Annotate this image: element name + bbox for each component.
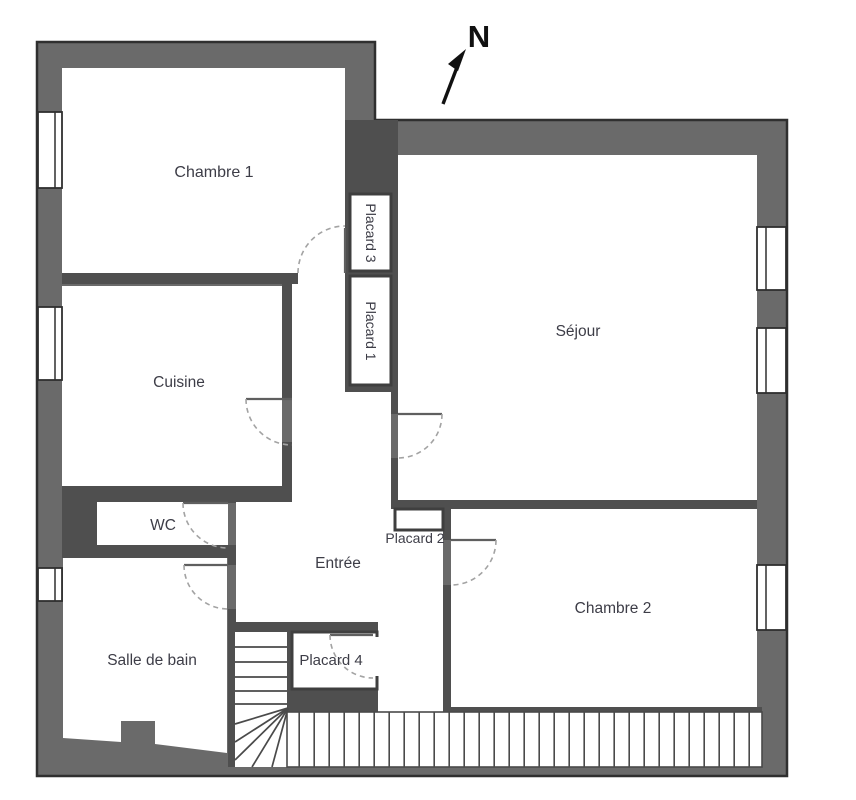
label-placard-2: Placard 2: [385, 530, 444, 546]
floor-plan-page: N Chambre 1 Cuisine WC Salle de bain Ent…: [0, 0, 856, 800]
stairs-lower-treads: [298, 712, 758, 767]
hallway-south: [292, 390, 391, 502]
label-cuisine: Cuisine: [153, 374, 205, 391]
wall-sejour-south: [391, 500, 757, 509]
closet-placard-2: [395, 509, 443, 530]
label-placard-3: Placard 3: [363, 203, 379, 262]
north-arrow: N: [443, 19, 490, 104]
window-right-chambre2: [757, 565, 786, 630]
label-chambre-2: Chambre 2: [575, 600, 652, 617]
wall-stairs-west: [228, 632, 235, 767]
north-arrow-head: [448, 49, 466, 71]
label-placard-1: Placard 1: [363, 301, 379, 360]
label-placard-4: Placard 4: [299, 652, 362, 669]
wall-wc-south: [62, 545, 235, 558]
floor-plan-drawing: N Chambre 1 Cuisine WC Salle de bain Ent…: [0, 0, 856, 800]
label-wc: WC: [150, 517, 176, 534]
stairs-upper-run: [235, 632, 287, 767]
window-right-sejour-1: [757, 227, 786, 290]
corridor-to-stairs: [378, 622, 443, 712]
window-left-salle-de-bain: [38, 568, 62, 601]
label-chambre-1: Chambre 1: [174, 164, 253, 181]
wall-chambre2-west-lower: [443, 585, 451, 707]
label-salle-de-bain: Salle de bain: [107, 652, 197, 669]
label-entree: Entrée: [315, 555, 361, 572]
window-left-cuisine: [38, 307, 62, 380]
placard4-door-opening: [373, 637, 382, 676]
wall-entree-west-c: [228, 609, 236, 622]
label-sejour: Séjour: [556, 323, 601, 340]
wall-below-placard4: [287, 689, 378, 712]
wall-entree-west-b: [228, 545, 236, 565]
wall-chambre1-south: [62, 273, 298, 284]
wall-sejour-west-lower: [391, 458, 398, 500]
wall-cuisine-east-upper: [282, 273, 292, 399]
window-right-sejour-2: [757, 328, 786, 393]
wall-entree-west-a: [228, 486, 236, 503]
window-left-chambre1: [38, 112, 62, 188]
north-label: N: [468, 19, 490, 54]
hallway-north: [292, 273, 345, 392]
